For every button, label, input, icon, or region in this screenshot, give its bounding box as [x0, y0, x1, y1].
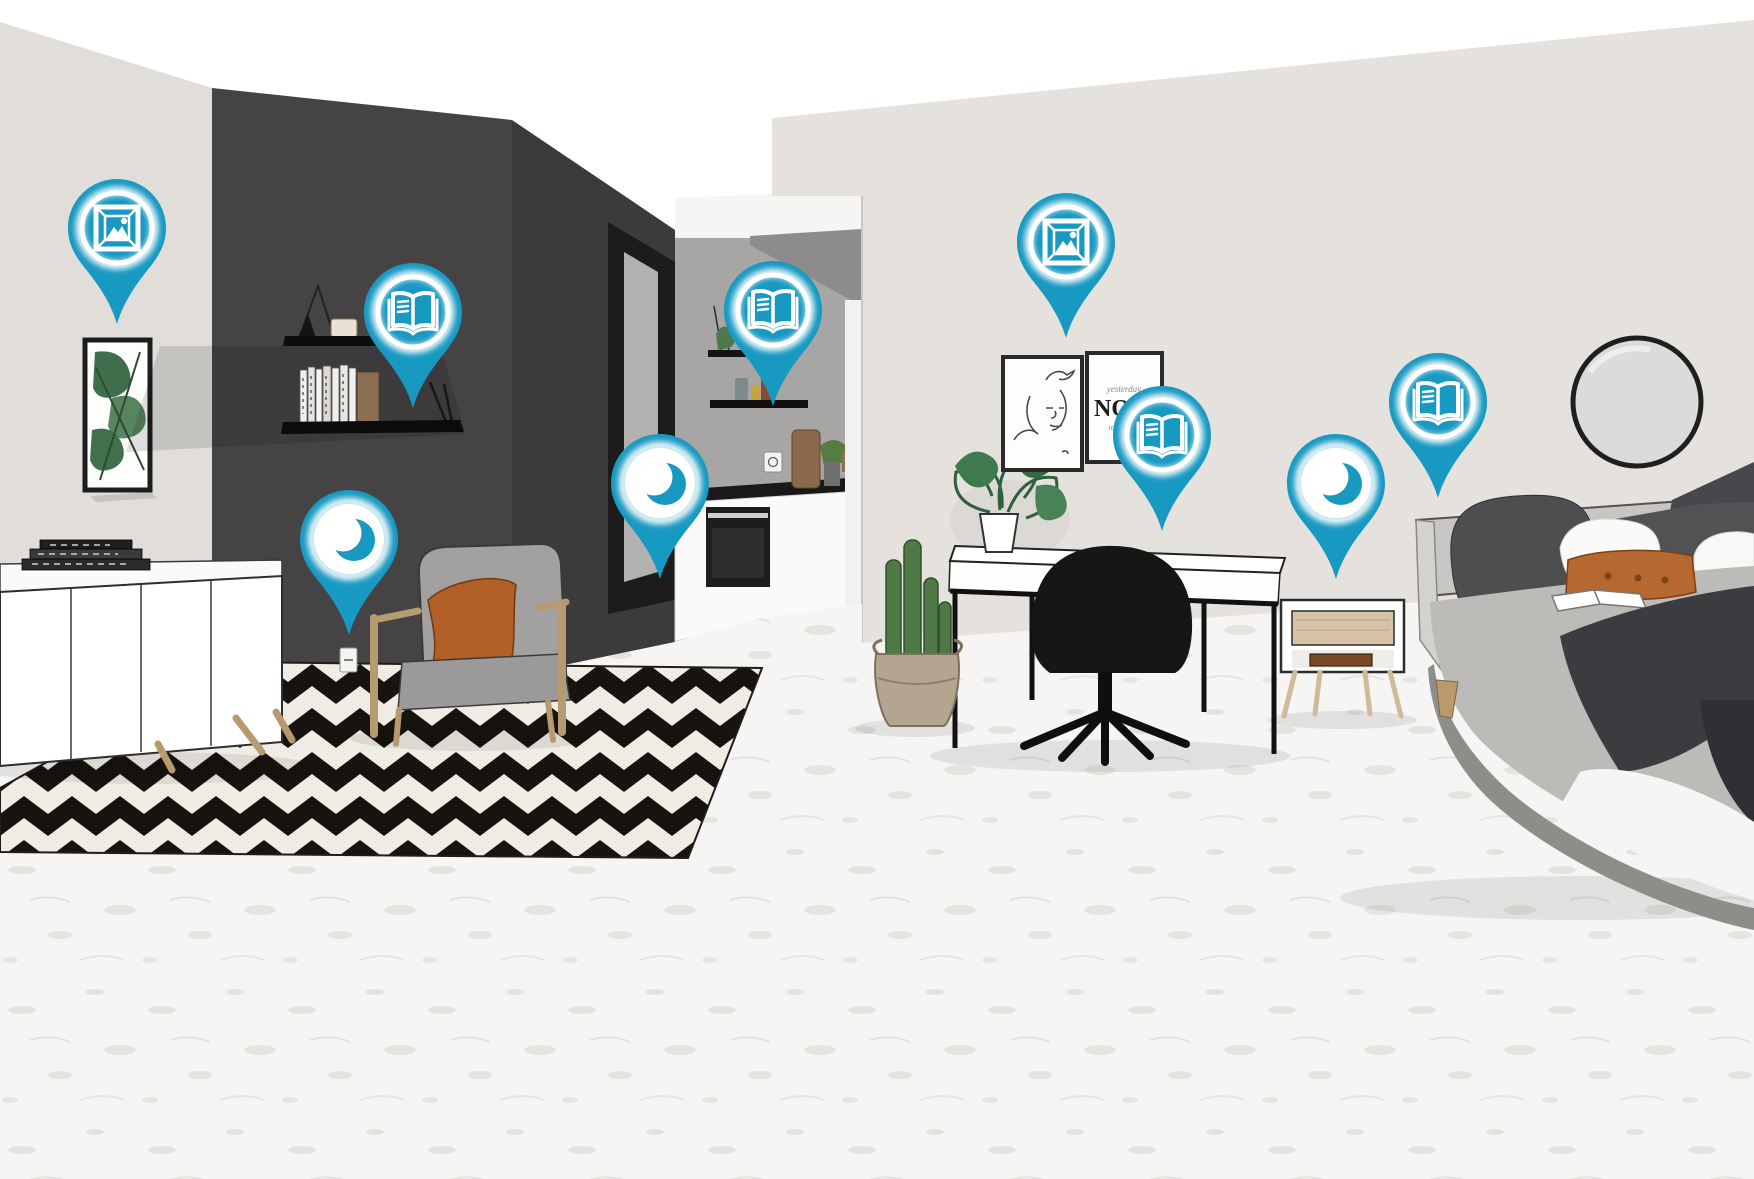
- pin-books-desk[interactable]: [1110, 383, 1214, 533]
- shelf-board-lower: [281, 420, 464, 434]
- cutting-board: [792, 430, 820, 488]
- moon-icon: [297, 487, 401, 637]
- armchair-seat: [398, 654, 570, 710]
- pin-sleep-bedside[interactable]: [1284, 431, 1388, 581]
- herb-pot: [824, 462, 840, 486]
- book-icon: [1110, 383, 1214, 533]
- kitchen-outlet: [764, 452, 782, 472]
- basket: [875, 654, 959, 726]
- book-icon: [361, 260, 465, 410]
- candle-roll: [331, 319, 357, 337]
- plant-pot: [980, 514, 1018, 552]
- pin-books-shelf[interactable]: [361, 260, 465, 410]
- bedside-drawer: [1292, 611, 1394, 645]
- pin-artwork-bedroom[interactable]: [1014, 190, 1118, 340]
- book-icon: [1386, 350, 1490, 500]
- pin-books-bed[interactable]: [1386, 350, 1490, 500]
- room-illustration: yesterday NOW tomorrow: [0, 0, 1754, 1179]
- book-icon: [721, 258, 825, 408]
- line-art-frame: [1003, 357, 1082, 470]
- pin-sleep-kitchen[interactable]: [608, 431, 712, 581]
- tall-cabinet-column: [845, 300, 862, 630]
- oven-handle: [708, 513, 768, 518]
- round-mirror: [1573, 338, 1701, 466]
- picture-icon: [65, 176, 169, 326]
- pin-artwork-living[interactable]: [65, 176, 169, 326]
- moon-icon: [608, 431, 712, 581]
- shelf-book: [1310, 654, 1372, 666]
- oven-door-glass: [712, 528, 764, 578]
- apartment-hotspot-view: yesterday NOW tomorrow: [0, 0, 1754, 1179]
- moon-icon: [1284, 431, 1388, 581]
- sideboard: [0, 540, 292, 770]
- pin-books-kitchen[interactable]: [721, 258, 825, 408]
- pin-sleep-armchair[interactable]: [297, 487, 401, 637]
- picture-icon: [1014, 190, 1118, 340]
- chair-shell: [1032, 546, 1192, 673]
- book-stack: [22, 540, 150, 570]
- chair-stem: [1098, 672, 1112, 712]
